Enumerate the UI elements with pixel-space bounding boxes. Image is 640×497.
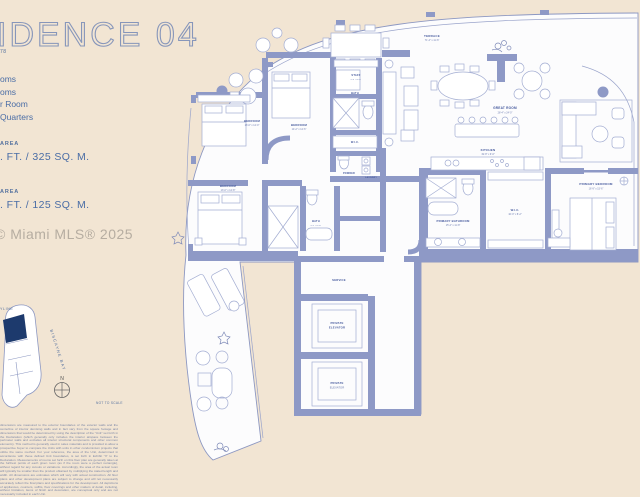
bedroom-4-label: BEDROOM bbox=[220, 184, 236, 188]
keyplan-street-label: YLINE bbox=[0, 307, 13, 311]
svg-text:N: N bbox=[60, 376, 64, 382]
exterior-area-label: AREA bbox=[0, 189, 19, 195]
svg-text:ELEVATOR: ELEVATOR bbox=[330, 386, 344, 390]
exterior-area-value: . FT. / 125 SQ. M. bbox=[0, 199, 89, 211]
svg-text:13'-6" x 12'-0": 13'-6" x 12'-0" bbox=[245, 124, 260, 127]
staff-label: STAFF bbox=[351, 73, 360, 77]
svg-text:14'-2" x 12'-6": 14'-2" x 12'-6" bbox=[292, 128, 307, 131]
svg-text:10'-0" x 8'-2": 10'-0" x 8'-2" bbox=[508, 213, 522, 216]
page: TERRACE 71'-4" x 11'-6" GREAT ROOM 28'-4… bbox=[0, 0, 640, 480]
svg-text:ELEVATOR: ELEVATOR bbox=[329, 326, 345, 330]
primary-bedroom-label: PRIMARY BEDROOM bbox=[579, 182, 612, 186]
bedroom-3-label: BEDROOM bbox=[291, 123, 307, 127]
keyplan: YLINE BISCAYNE BAY N NOT TO SCALE bbox=[0, 300, 130, 418]
svg-text:71'-4" x 11'-6": 71'-4" x 11'-6" bbox=[425, 39, 440, 42]
service-label: SERVICE bbox=[332, 278, 346, 282]
feature-list: oms oms r Room Quarters bbox=[0, 73, 33, 123]
feature-item: Quarters bbox=[0, 111, 33, 124]
primary-wic-label: W.I.C. bbox=[511, 208, 520, 212]
feature-item: oms bbox=[0, 73, 33, 86]
svg-text:28'-4" x 24'-0": 28'-4" x 24'-0" bbox=[498, 112, 513, 115]
primary-bathroom-label: PRIMARY BATHROOM bbox=[437, 219, 470, 223]
elevator-1-label: PRIVATE bbox=[330, 321, 343, 325]
svg-text:9'-0" x 8'-6": 9'-0" x 8'-6" bbox=[350, 79, 361, 81]
svg-text:9'-2" x 5'-6": 9'-2" x 5'-6" bbox=[310, 225, 321, 227]
elevator-2-label: PRIVATE bbox=[330, 381, 343, 385]
kitchen-label: KITCHEN bbox=[481, 148, 496, 152]
svg-text:19'-8" x 9'-6": 19'-8" x 9'-6" bbox=[481, 153, 495, 156]
mls-watermark: © Miami MLS® 2025 bbox=[0, 226, 133, 242]
residence-subtitle: 78 bbox=[0, 49, 7, 55]
residence-title: IDENCE 04 bbox=[0, 16, 200, 55]
feature-item: oms bbox=[0, 86, 33, 99]
bath-4-label: BATH bbox=[312, 219, 320, 223]
terrace-label: TERRACE bbox=[424, 34, 440, 38]
svg-text:15'-2" x 11'-8": 15'-2" x 11'-8" bbox=[446, 224, 461, 227]
interior-area-label: AREA bbox=[0, 141, 19, 147]
starfish-icon bbox=[172, 232, 184, 244]
biscayne-bay-label: BISCAYNE BAY bbox=[49, 329, 67, 372]
svg-text:16'-9" x 15'-6": 16'-9" x 15'-6" bbox=[589, 188, 604, 191]
bath-3-label: BATH bbox=[351, 91, 359, 95]
interior-area-value: . FT. / 325 SQ. M. bbox=[0, 151, 89, 163]
not-to-scale-note: NOT TO SCALE bbox=[96, 401, 123, 405]
compass-icon: N bbox=[55, 376, 70, 398]
bedroom-2-label: BEDROOM bbox=[244, 119, 260, 123]
great-room-label: GREAT ROOM bbox=[493, 106, 517, 110]
legal-disclaimer: dimensions are measured to the exterior … bbox=[0, 424, 118, 497]
laundry-label: LAUNDRY bbox=[365, 176, 377, 179]
svg-text:13'-0" x 12'-8": 13'-0" x 12'-8" bbox=[221, 189, 236, 192]
powder-label: POWDER bbox=[343, 172, 355, 175]
wic-2-label: W.I.C. bbox=[351, 140, 359, 144]
feature-item: r Room bbox=[0, 98, 33, 111]
